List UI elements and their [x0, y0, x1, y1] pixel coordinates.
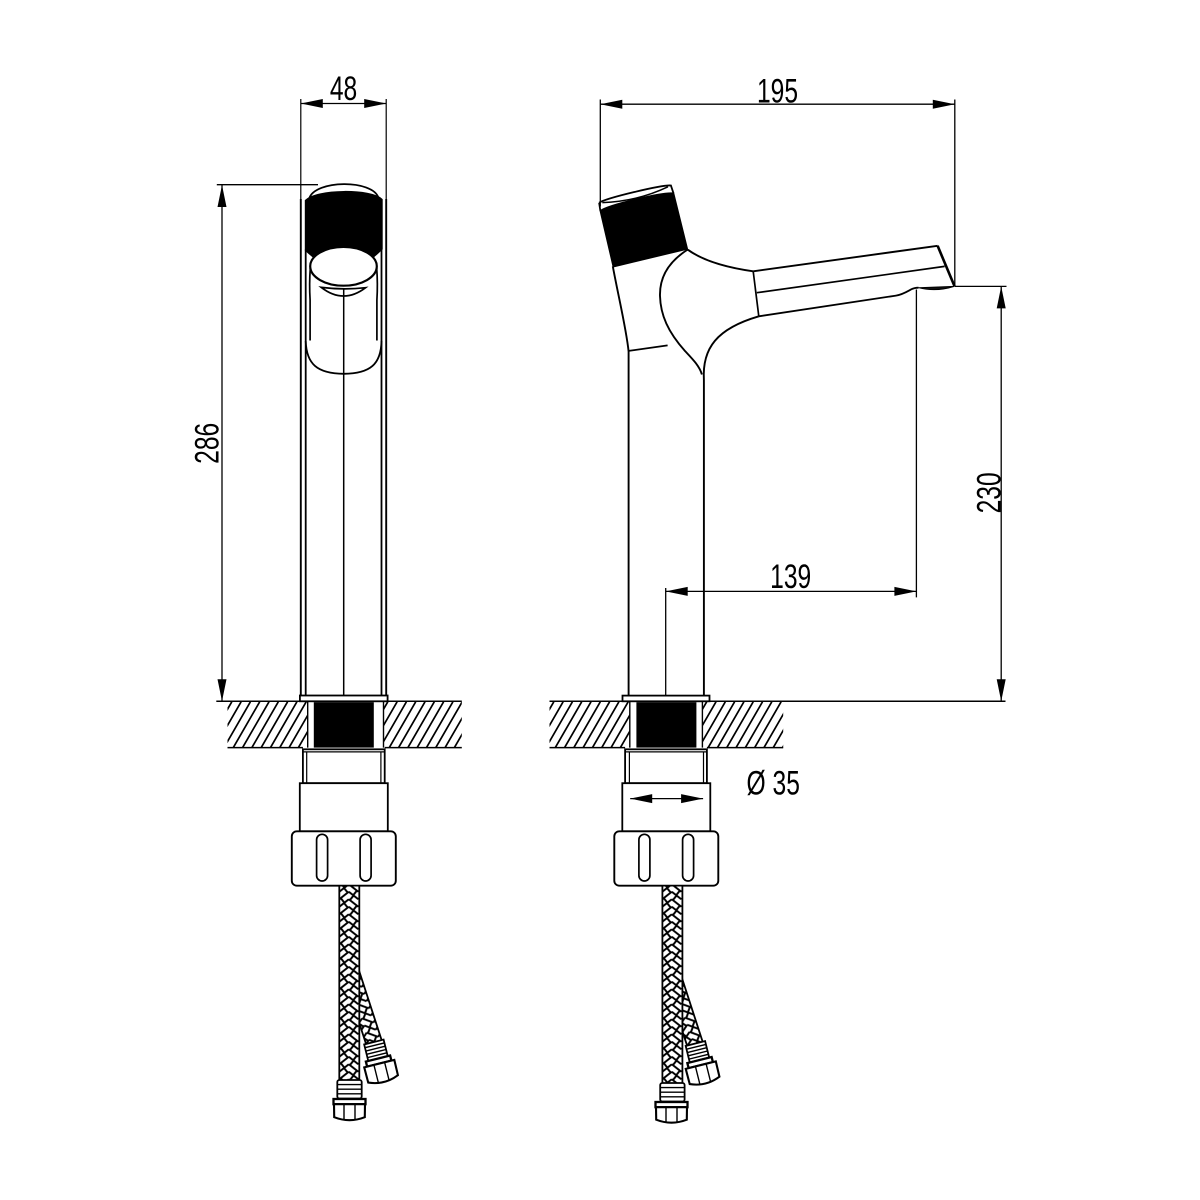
svg-text:195: 195: [757, 72, 798, 110]
svg-text:139: 139: [770, 558, 811, 596]
svg-text:230: 230: [971, 472, 1009, 513]
svg-text:Ø 35: Ø 35: [747, 765, 800, 803]
svg-text:286: 286: [188, 423, 226, 464]
svg-text:48: 48: [330, 70, 357, 108]
